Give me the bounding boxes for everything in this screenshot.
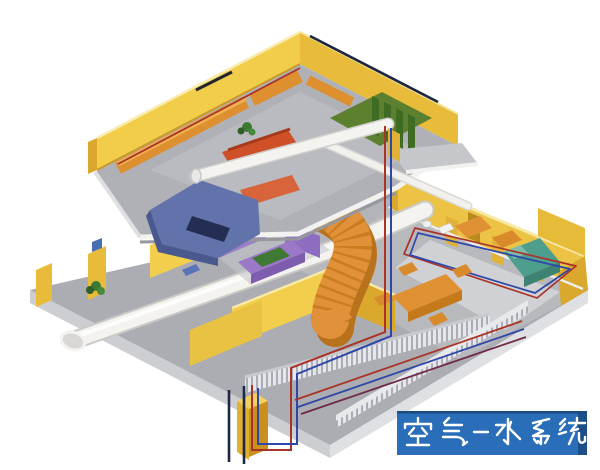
air-duct-lower — [59, 210, 425, 353]
system-caption: 空气-水系统 — [397, 411, 587, 455]
balcony — [388, 128, 478, 172]
piano — [146, 180, 260, 266]
caption-box — [397, 411, 587, 455]
orange-cabinets — [455, 216, 522, 248]
red-pipe-run — [252, 126, 385, 450]
purple-sofa-set — [182, 213, 330, 284]
blue-pipe-run — [258, 128, 391, 444]
front-wall-column — [237, 393, 268, 460]
lower-back-wall — [390, 174, 588, 306]
navy-pipe-run — [310, 36, 438, 102]
red-table — [240, 175, 300, 206]
staircase — [303, 188, 358, 330]
plant — [238, 122, 256, 136]
wing-partition-walls — [402, 214, 583, 289]
air-duct-upper — [191, 124, 468, 206]
radiator-railing — [245, 300, 528, 428]
lower-slab-edge-se — [330, 290, 588, 458]
upper-floor — [88, 32, 478, 266]
upper-pipe-runs — [118, 36, 438, 172]
slide: 空气-水系统 — [0, 0, 600, 470]
green-mat — [330, 92, 432, 146]
wing-pipe-loop — [404, 228, 576, 298]
interior-walls — [36, 225, 395, 366]
dining-table-set — [374, 262, 472, 326]
window-blinds — [372, 96, 415, 155]
wall-counter — [118, 76, 352, 168]
building-illustration: 空气-水系统 — [0, 0, 600, 470]
upper-slab-fascia — [140, 146, 458, 237]
navy-pipe-posts — [229, 386, 244, 464]
staircase-band — [318, 205, 353, 320]
plant — [86, 281, 105, 295]
red-couch — [222, 129, 300, 206]
bathroom-fixtures — [423, 221, 455, 235]
lower-slab-edge-sw — [30, 290, 330, 458]
lower-floor — [30, 174, 588, 460]
round-tables — [272, 181, 390, 217]
caption-glyphs — [405, 418, 585, 445]
teal-bed — [504, 238, 560, 287]
lower-floor-deck — [30, 208, 588, 445]
upper-floor-deck — [95, 64, 458, 237]
upper-back-walls — [88, 32, 458, 174]
small-chair — [182, 264, 200, 276]
coffee-table — [252, 247, 290, 267]
water-pipe-risers — [229, 126, 526, 464]
